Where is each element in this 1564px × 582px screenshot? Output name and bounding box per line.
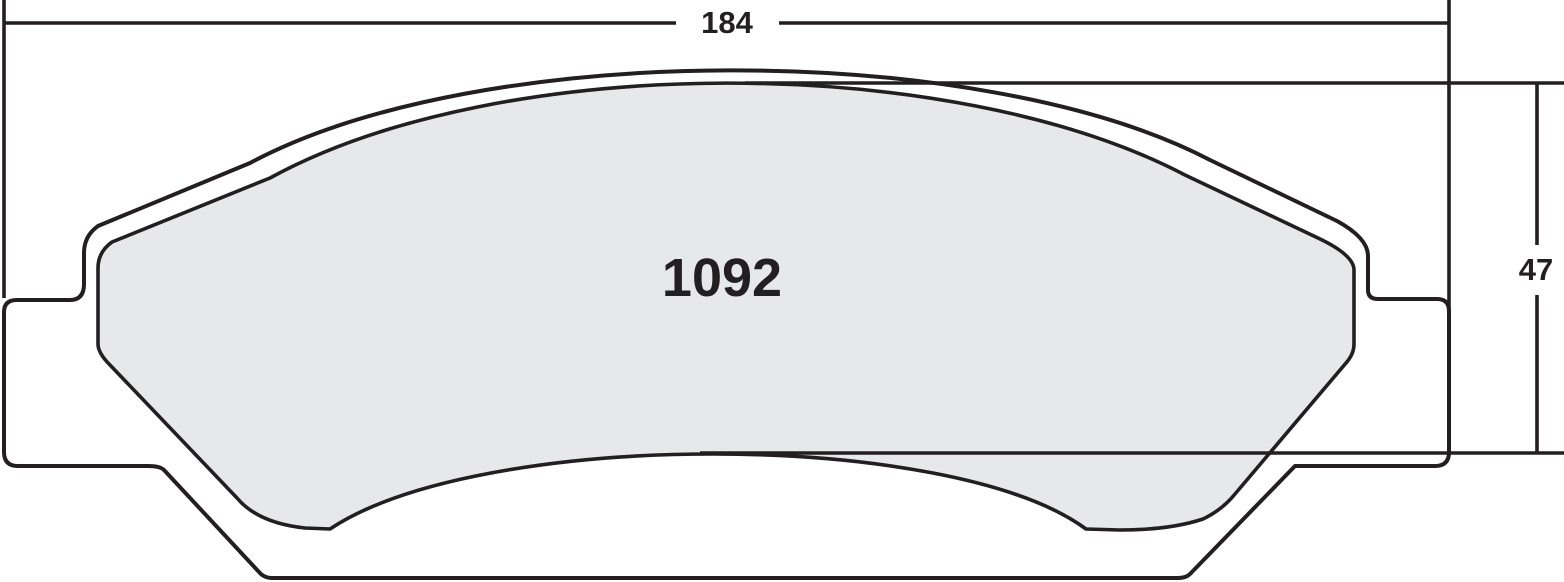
height-dimension-label: 47 bbox=[1519, 252, 1553, 287]
drawing-canvas: 184 47 1092 bbox=[0, 0, 1564, 582]
width-dimension-label: 184 bbox=[701, 5, 753, 40]
part-number-label: 1092 bbox=[662, 248, 782, 308]
brake-pad-technical-drawing: 184 47 1092 bbox=[0, 0, 1564, 582]
